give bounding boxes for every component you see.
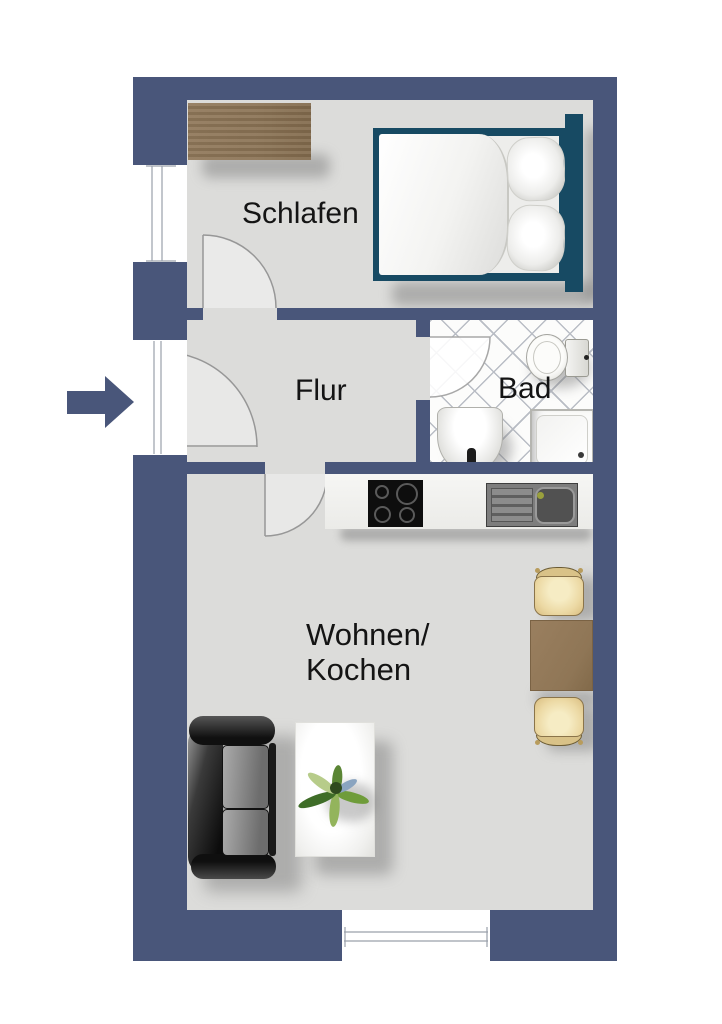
entrance-threshold [154, 341, 161, 454]
window-frame-bottom [344, 927, 488, 947]
window-frame-left [146, 166, 176, 261]
frames-layer [0, 0, 722, 1024]
room-label-bathroom: Bad [498, 372, 551, 406]
room-label-hallway: Flur [295, 374, 347, 408]
room-label-living-line1: Wohnen/ [306, 617, 430, 652]
room-label-living-line2: Kochen [306, 652, 430, 687]
floor-plan: Schlafen Flur Bad Wohnen/ Kochen [0, 0, 722, 1024]
entrance-arrow-icon [67, 376, 134, 428]
room-label-bedroom: Schlafen [242, 197, 359, 231]
room-label-living-kitchen: Wohnen/ Kochen [306, 617, 430, 687]
